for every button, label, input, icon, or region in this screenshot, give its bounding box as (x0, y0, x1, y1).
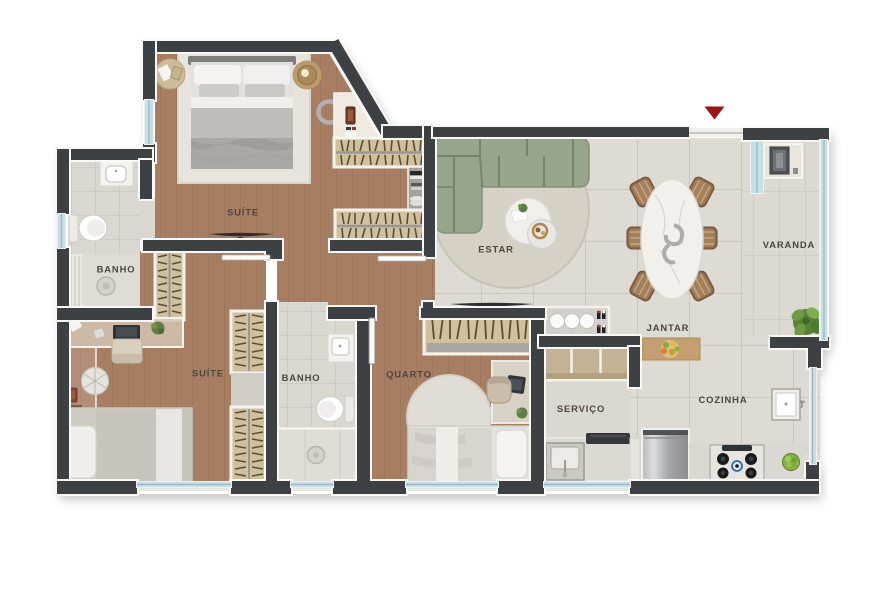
svg-text:ESTAR: ESTAR (478, 244, 514, 255)
svg-text:SERVIÇO: SERVIÇO (557, 403, 605, 414)
svg-text:SUÍTE: SUÍTE (227, 207, 259, 218)
svg-text:BANHO: BANHO (282, 372, 321, 383)
svg-text:COZINHA: COZINHA (698, 394, 747, 405)
svg-text:VARANDA: VARANDA (763, 239, 815, 250)
svg-text:QUARTO: QUARTO (386, 369, 432, 380)
svg-text:BANHO: BANHO (97, 264, 136, 275)
svg-text:JANTAR: JANTAR (647, 322, 690, 333)
svg-text:SUÍTE: SUÍTE (192, 368, 224, 379)
